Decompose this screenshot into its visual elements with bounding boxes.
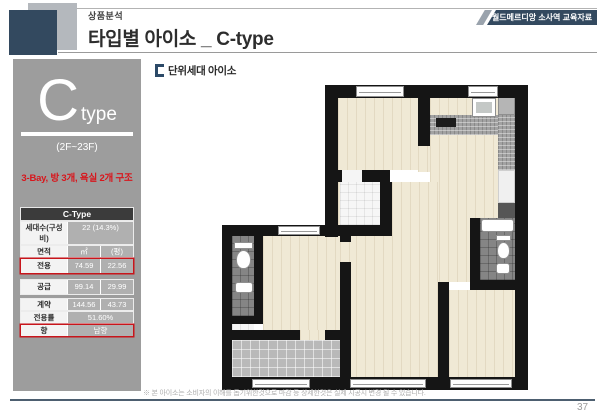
footer-rule — [10, 399, 595, 401]
row-value: 51.60% — [68, 312, 133, 323]
floor-plan — [222, 82, 534, 390]
row-value-pyeong: 29.99 — [101, 280, 133, 294]
row-value: 22 (14.3%) — [68, 222, 133, 244]
row-label: 전용 — [21, 259, 67, 273]
footnote: ※ 본 아이소는 소비자의 이해를 돕기위한것으로 마감 등 상세한것은 실제 … — [143, 388, 426, 398]
page-number: 37 — [577, 402, 588, 413]
wall — [325, 85, 338, 237]
header-divider — [58, 52, 597, 53]
slide-eyebrow: 상품분석 — [88, 9, 274, 22]
toilet-tank — [234, 242, 253, 249]
header-badge: 월드메르디앙 소사역 교육자료 — [487, 10, 597, 25]
wall — [438, 282, 449, 377]
page-title: 타입별 아이소 _ C-type — [88, 24, 274, 51]
row-label: 세대수(구성비) — [21, 222, 67, 244]
window — [252, 379, 310, 388]
kitchen-counter-side — [498, 115, 515, 170]
row-value-m2: 144.56 — [68, 299, 100, 310]
wall — [380, 182, 392, 236]
logo-square — [9, 10, 57, 55]
toilet-tank — [496, 235, 511, 241]
row-value-m2: ㎡ — [68, 246, 100, 257]
type-word: type — [81, 104, 117, 125]
table-row: 면적 ㎡ (평) — [21, 246, 133, 257]
refrigerator — [498, 97, 515, 115]
row-value-pyeong: 22.56 — [101, 259, 133, 273]
side-balcony — [498, 170, 515, 203]
window — [278, 226, 320, 235]
header-text-block: 상품분석 타입별 아이소 _ C-type — [88, 9, 274, 51]
table-row: 계약 144.56 43.73 — [21, 299, 133, 310]
bedroom3-floor — [449, 290, 515, 377]
row-value-pyeong: (평) — [101, 246, 133, 257]
row-value-pyeong: 43.73 — [101, 299, 133, 310]
type-info-panel: Ctype (2F~23F) 3-Bay, 방 3개, 욕실 2개 구조 C-T… — [13, 59, 141, 391]
bathroom-sink — [496, 263, 510, 274]
table-row: 전용률 51.60% — [21, 312, 133, 323]
ac-unit — [498, 203, 515, 218]
row-label: 면적 — [21, 246, 67, 257]
row-label: 향 — [21, 325, 67, 336]
balcony-floor — [232, 340, 340, 377]
entry-floor — [340, 182, 380, 225]
slide: 상품분석 타입별 아이소 _ C-type 월드메르디앙 소사역 교육자료 Ct… — [0, 0, 600, 415]
table-row-direction: 향 남향 — [21, 325, 133, 336]
wall — [222, 225, 232, 390]
wall — [470, 280, 528, 290]
row-value: 남향 — [68, 325, 133, 336]
row-value-m2: 74.59 — [68, 259, 100, 273]
toilet — [236, 250, 251, 269]
window — [356, 86, 404, 97]
bedroom1-door-opening — [418, 146, 430, 172]
section-header: 단위세대 아이소 — [155, 63, 236, 78]
window — [450, 379, 512, 388]
type-display: Ctype — [13, 73, 141, 129]
structure-note: 3-Bay, 방 3개, 욕실 2개 구조 — [13, 170, 141, 184]
row-label: 공급 — [21, 280, 67, 294]
table-row-exclusive: 전용 74.59 22.56 — [21, 259, 133, 273]
table-row: 세대수(구성비) 22 (14.3%) — [21, 222, 133, 244]
bracket-icon — [155, 64, 164, 77]
toilet — [497, 242, 510, 259]
bedroom2-floor — [263, 236, 340, 330]
spec-table-title: C-Type — [21, 208, 133, 220]
section-label: 단위세대 아이소 — [168, 63, 236, 78]
row-label: 계약 — [21, 299, 67, 310]
bathtub — [481, 219, 514, 232]
balcony-door-opening — [300, 330, 325, 340]
table-row: 공급 99.14 29.99 — [21, 280, 133, 294]
wall — [515, 85, 528, 390]
cooktop — [436, 118, 456, 127]
row-value-m2: 99.14 — [68, 280, 100, 294]
wall — [232, 316, 263, 324]
row-label: 전용률 — [21, 312, 67, 323]
type-letter: C — [37, 68, 79, 133]
window — [350, 379, 426, 388]
window — [468, 86, 498, 97]
wall — [470, 218, 480, 280]
floor-range: (2F~23F) — [13, 142, 141, 153]
bathroom-sink — [235, 282, 253, 293]
bedroom1-floor — [338, 98, 418, 170]
bedroom2-door-opening — [340, 242, 351, 262]
kitchen-sink-basin — [476, 102, 492, 113]
entry-door — [342, 170, 362, 182]
wall — [254, 236, 263, 321]
spec-table: C-Type 세대수(구성비) 22 (14.3%) 면적 ㎡ (평) 전용 7… — [21, 208, 133, 336]
